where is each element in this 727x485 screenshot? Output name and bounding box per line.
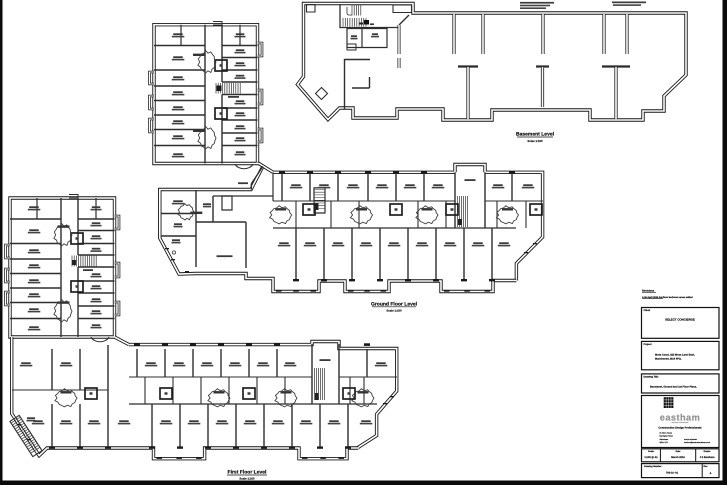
svg-text:Altrincham: Altrincham [660,438,669,441]
svg-text:J S Eastham: J S Eastham [700,456,716,459]
svg-text:First Floor Level: First Floor Level [228,470,268,476]
svg-text:Client: Client [644,309,651,312]
svg-text:March 2016: March 2016 [671,456,685,459]
svg-text:Barrington Road: Barrington Road [660,435,673,438]
svg-text:Scale 1:100: Scale 1:100 [386,308,402,312]
svg-text:SELECT CONCIERGE: SELECT CONCIERGE [665,317,695,321]
svg-text:Drawing Number: Drawing Number [644,465,662,468]
svg-text:Scale 1:100: Scale 1:100 [239,477,255,481]
svg-text:Ground Floor Level: Ground Floor Level [371,301,418,307]
svg-text:Drawing Title: Drawing Title [644,376,660,379]
svg-text:Date: Date [676,450,682,453]
svg-text:Basement Level: Basement Level [516,132,555,138]
svg-text:WA14 1JY: WA14 1JY [660,441,669,444]
svg-text:Scale: Scale [648,450,655,453]
svg-text:Scale 1:100: Scale 1:100 [527,139,543,143]
svg-text:St Johns House: St Johns House [660,432,673,435]
svg-text:1:100 @ A1: 1:100 @ A1 [644,456,658,459]
svg-text:eastham: eastham [660,413,700,423]
svg-text:A: A [710,472,712,475]
svg-text:763-16 -01: 763-16 -01 [666,472,679,475]
svg-text:Drawn: Drawn [704,450,711,453]
svg-text:Basement, Ground and 1st Floor: Basement, Ground and 1st Floor Plans. [650,386,697,389]
svg-text:Manchester, M14 4PQ.: Manchester, M14 4PQ. [655,358,682,361]
svg-text:Construction Design Profession: Construction Design Professionals [658,426,702,429]
svg-text:Moss Court, 422 Moss Lane East: Moss Court, 422 Moss Lane East, [655,354,695,357]
svg-text:Project: Project [644,343,652,346]
